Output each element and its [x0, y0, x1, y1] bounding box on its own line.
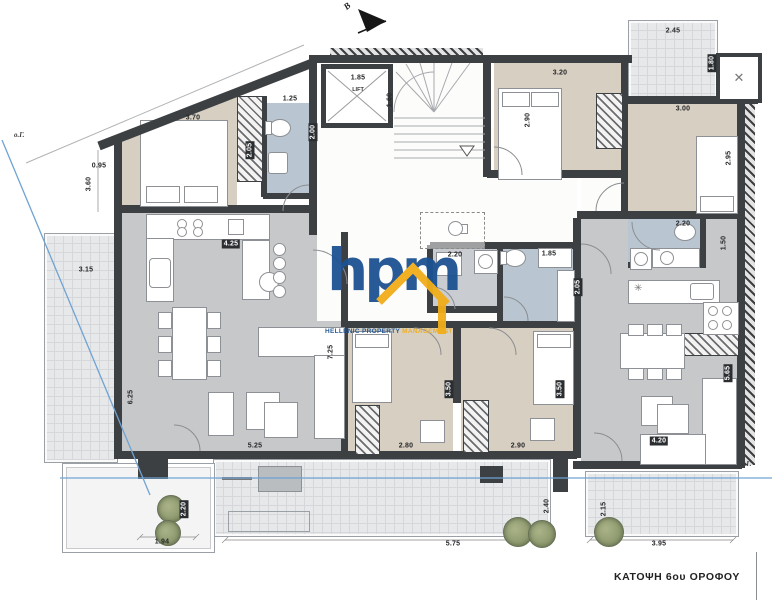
- dimension-label: 2.15: [600, 502, 609, 516]
- dimension-label: 2.00: [309, 123, 318, 141]
- dimension-label: 0.95: [92, 162, 106, 171]
- dimension-label: 3.20: [553, 69, 567, 78]
- dimension-label: 2.20: [180, 500, 189, 518]
- outer-slant-wall: [26, 45, 315, 163]
- stairs: [394, 63, 485, 158]
- logo-tagline-primary: HELLENIC PROPERTY: [325, 328, 402, 335]
- dimension-label: 1.50: [720, 236, 729, 250]
- dimension-label: 1.85: [351, 74, 365, 83]
- dimension-label: 7.25: [327, 345, 336, 359]
- dimension-label: 4.20: [650, 437, 668, 446]
- stairs-down-arrow-icon: [460, 146, 474, 156]
- boundary-label-right: ο.Γ.: [741, 460, 751, 468]
- dimension-label: 2.90: [524, 113, 533, 127]
- dimension-label: 2.80: [399, 442, 413, 451]
- floor-plan-canvas: ✕: [0, 0, 772, 600]
- plant-icon: [528, 520, 556, 548]
- logo-tagline-accent: MANAGEMENT: [402, 328, 452, 335]
- dimension-label: 6.25: [127, 390, 136, 404]
- dimension-label: 1.25: [283, 95, 297, 104]
- dimension-label: 2.90: [511, 442, 525, 451]
- dimension-label: 2.45: [666, 27, 680, 36]
- dimension-label: 2.20: [676, 220, 690, 229]
- dimension-label: 2.05: [574, 278, 583, 296]
- dimension-label: 5.25: [248, 442, 262, 451]
- lift-label: LIFT: [352, 87, 364, 93]
- logo-house-icon: [375, 254, 453, 338]
- dimension-label: 3.70: [186, 114, 200, 123]
- dimension-label: 2.95: [725, 151, 734, 165]
- dimension-label: 3.60: [85, 177, 94, 191]
- drawing-title: ΚΑΤΟΨΗ 6ου ΟΡΟΦΟΥ: [614, 571, 740, 583]
- dimension-label: 1.85: [542, 250, 556, 259]
- plant-icon: [594, 517, 624, 547]
- dimension-label: 3.50: [556, 380, 565, 398]
- dimension-label: 3.15: [79, 266, 93, 275]
- dimension-label: 4.25: [222, 240, 240, 249]
- dimension-label: 3.95: [652, 540, 666, 549]
- boundary-label-left: ο.Γ.: [14, 131, 24, 139]
- dimension-label: 3.00: [676, 105, 690, 114]
- north-arrow-icon: [358, 9, 386, 33]
- hpm-watermark-logo: hpm HELLENIC PROPERTY MANAGEMENT: [323, 252, 455, 342]
- dimension-label: 5.75: [446, 540, 460, 549]
- dimension-label: 1.94: [155, 538, 169, 547]
- dimension-label: 1.60: [386, 93, 395, 107]
- dimension-label: 5.65: [724, 364, 733, 382]
- title-block-divider: [756, 552, 757, 600]
- dimension-label: 1.80: [708, 54, 717, 72]
- dimension-label: 2.05: [246, 141, 255, 159]
- dimension-lines: [98, 150, 736, 543]
- logo-tagline: HELLENIC PROPERTY MANAGEMENT: [325, 328, 452, 335]
- dimension-label: 3.50: [445, 380, 454, 398]
- dimension-label: 2.40: [543, 499, 552, 513]
